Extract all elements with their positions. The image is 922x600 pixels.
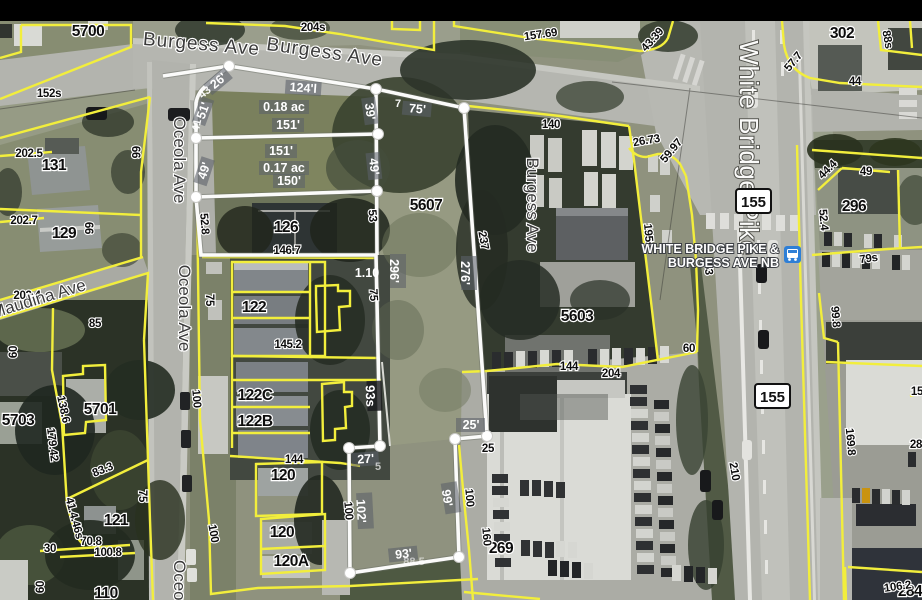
svg-text:15: 15 (911, 386, 922, 398)
svg-text:5603: 5603 (561, 308, 594, 325)
svg-text:155: 155 (741, 194, 766, 211)
svg-text:202.5: 202.5 (15, 148, 43, 160)
svg-text:44: 44 (849, 76, 862, 88)
svg-text:126: 126 (274, 219, 299, 236)
svg-text:5700: 5700 (72, 23, 104, 40)
svg-text:85: 85 (89, 318, 102, 330)
svg-text:100: 100 (341, 501, 355, 520)
svg-text:151': 151' (269, 144, 293, 158)
svg-text:30: 30 (44, 543, 56, 555)
svg-text:52.8: 52.8 (197, 213, 211, 236)
svg-text:122: 122 (242, 299, 266, 316)
svg-text:5703: 5703 (2, 412, 35, 429)
svg-text:66: 66 (82, 222, 94, 234)
svg-text:144: 144 (285, 454, 304, 466)
svg-text:152s: 152s (37, 88, 61, 100)
svg-text:120: 120 (271, 467, 295, 484)
svg-text:White Bridge Pike: White Bridge Pike (734, 40, 764, 255)
svg-text:99': 99' (439, 489, 455, 508)
svg-text:1.10: 1.10 (355, 266, 379, 280)
svg-text:99.8: 99.8 (828, 306, 842, 329)
svg-text:202.7: 202.7 (10, 215, 37, 227)
svg-text:120A: 120A (273, 553, 308, 570)
svg-text:Oceola Ave: Oceola Ave (170, 117, 189, 204)
svg-text:27': 27' (357, 451, 375, 466)
svg-text:49': 49' (366, 157, 382, 175)
svg-text:53: 53 (365, 209, 378, 222)
svg-text:131: 131 (42, 157, 67, 174)
svg-text:75': 75' (408, 101, 426, 116)
svg-text:100.8: 100.8 (94, 547, 122, 559)
svg-text:0.18 ac: 0.18 ac (263, 100, 305, 114)
svg-text:102': 102' (353, 499, 368, 524)
svg-text:79s: 79s (859, 252, 879, 266)
svg-text:160: 160 (479, 527, 493, 546)
svg-text:39': 39' (362, 102, 378, 121)
svg-text:140: 140 (542, 119, 560, 131)
svg-text:150': 150' (277, 174, 301, 188)
svg-text:25': 25' (463, 418, 480, 432)
svg-text:93s: 93s (363, 385, 379, 407)
svg-text:144: 144 (560, 361, 579, 373)
svg-text:5701: 5701 (84, 401, 117, 418)
svg-text:75: 75 (136, 490, 148, 503)
svg-text:145.2: 145.2 (274, 339, 301, 351)
svg-text:88.5: 88.5 (403, 556, 424, 568)
svg-text:296': 296' (387, 259, 401, 283)
svg-text:110: 110 (94, 585, 118, 600)
svg-text:Burgess Ave: Burgess Ave (523, 157, 542, 252)
svg-text:60: 60 (8, 346, 20, 358)
svg-text:121: 121 (104, 512, 129, 529)
svg-text:5607: 5607 (410, 197, 442, 214)
svg-text:BURGESS AVE NB: BURGESS AVE NB (668, 256, 779, 270)
svg-text:Oceola Ave: Oceola Ave (175, 265, 194, 352)
svg-text:151': 151' (276, 118, 300, 132)
svg-text:Oceola Ave: Oceola Ave (170, 560, 189, 600)
svg-text:25: 25 (482, 443, 495, 455)
svg-text:75: 75 (203, 294, 215, 307)
svg-text:0.17 ac: 0.17 ac (263, 161, 305, 175)
svg-text:66: 66 (129, 146, 141, 158)
svg-text:75: 75 (367, 288, 380, 302)
svg-text:28: 28 (910, 439, 922, 451)
svg-text:100: 100 (189, 389, 203, 408)
svg-text:120: 120 (270, 524, 294, 541)
svg-text:122B: 122B (237, 413, 272, 430)
svg-text:204: 204 (602, 368, 621, 380)
svg-text:100: 100 (462, 488, 476, 507)
svg-text:7: 7 (395, 98, 401, 110)
svg-text:204s: 204s (301, 22, 325, 34)
svg-text:5: 5 (375, 461, 381, 473)
svg-text:52.4: 52.4 (816, 209, 830, 232)
svg-text:41: 41 (190, 118, 204, 132)
svg-text:276': 276' (458, 261, 472, 285)
svg-text:124'l: 124'l (289, 80, 317, 96)
svg-text:129: 129 (52, 225, 77, 242)
svg-text:60: 60 (683, 343, 695, 355)
svg-text:49: 49 (860, 166, 872, 178)
svg-text:60: 60 (35, 581, 47, 593)
svg-text:169.8: 169.8 (843, 428, 857, 457)
svg-text:302: 302 (830, 25, 854, 42)
svg-text:296: 296 (842, 198, 867, 215)
svg-text:146.7: 146.7 (273, 245, 300, 257)
svg-text:122C: 122C (237, 387, 272, 404)
svg-text:WHITE BRIDGE PIKE &: WHITE BRIDGE PIKE & (641, 242, 779, 256)
svg-text:155: 155 (760, 389, 785, 406)
